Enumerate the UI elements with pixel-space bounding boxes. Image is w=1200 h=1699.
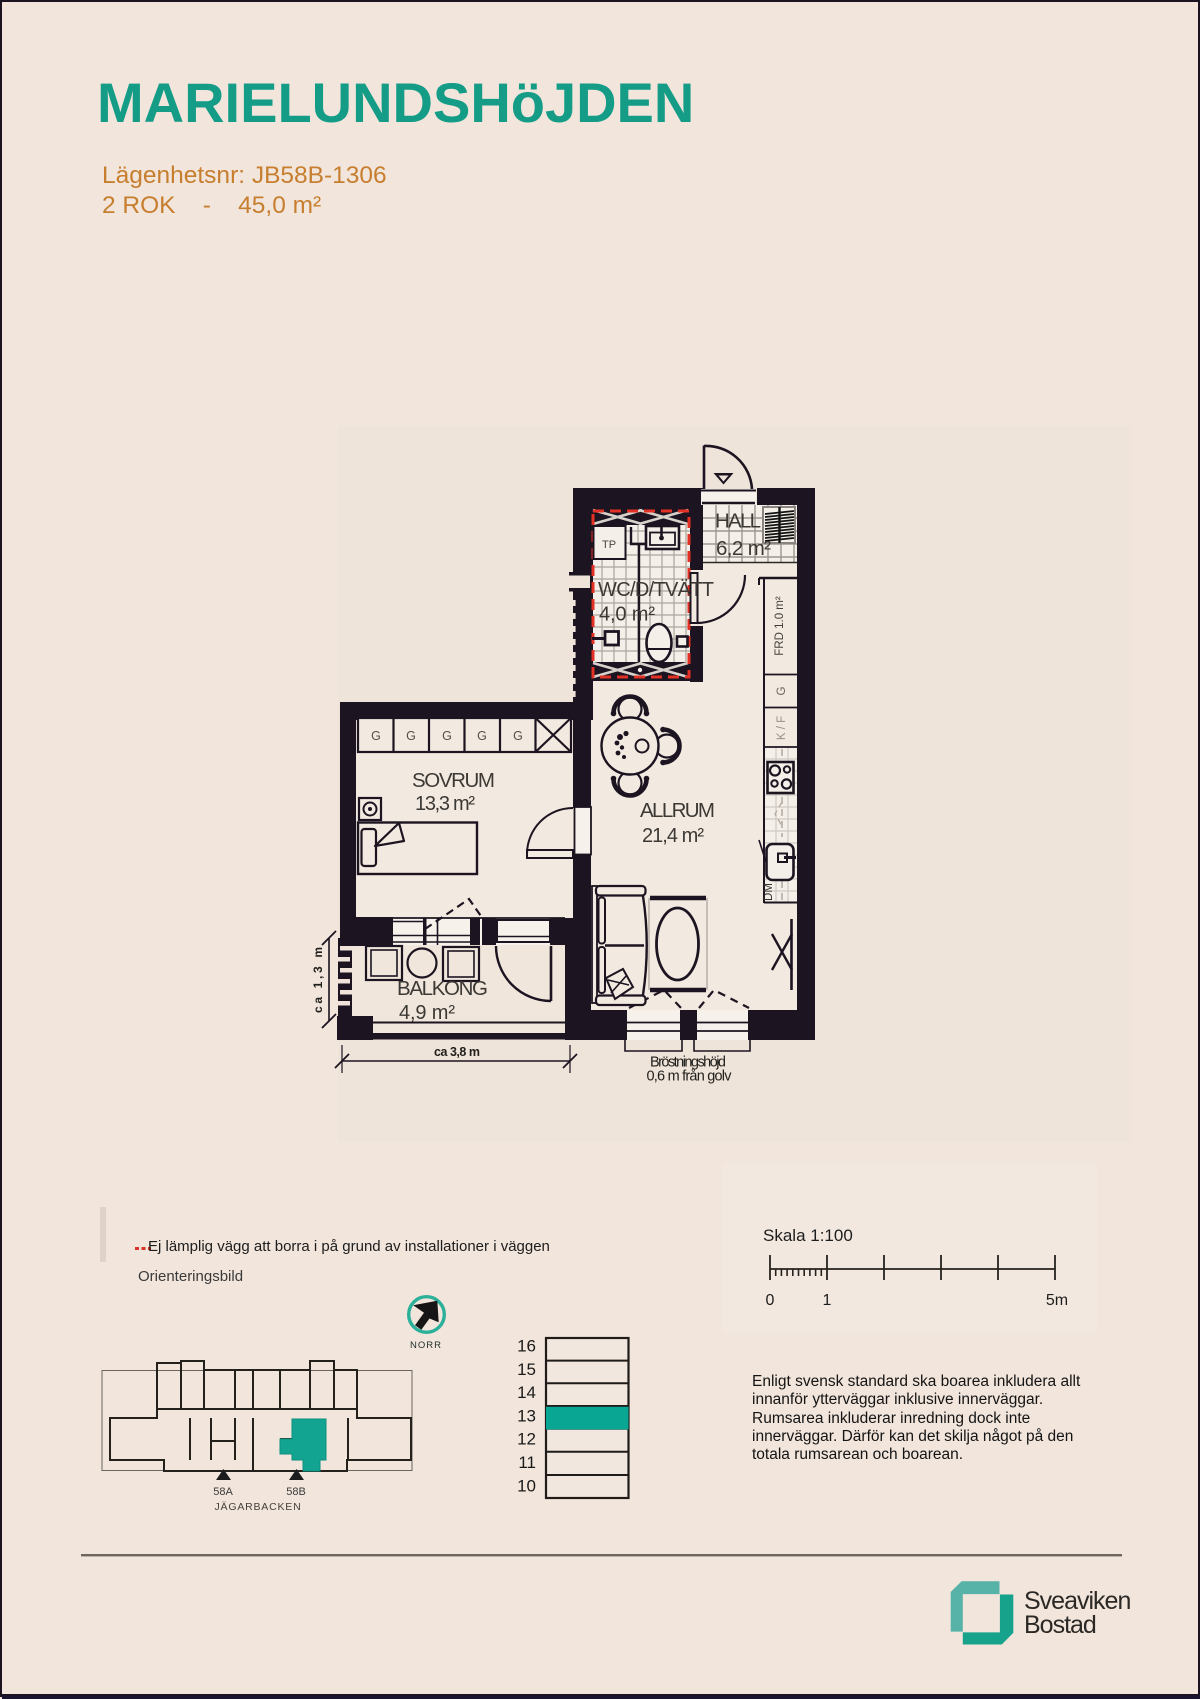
svg-text:1: 1 xyxy=(823,1292,832,1309)
svg-text:JÄGARBACKEN: JÄGARBACKEN xyxy=(215,1501,302,1513)
svg-text:G: G xyxy=(477,729,487,743)
svg-text:WC/D/TVÄTT: WC/D/TVÄTT xyxy=(598,579,714,601)
svg-text:G: G xyxy=(776,686,788,695)
svg-text:ALLRUM: ALLRUM xyxy=(640,799,715,822)
svg-text:G: G xyxy=(442,729,452,743)
svg-text:G: G xyxy=(406,729,416,743)
svg-text:6,2 m²: 6,2 m² xyxy=(716,537,771,560)
svg-text:13,3 m²: 13,3 m² xyxy=(415,793,475,815)
svg-text:10: 10 xyxy=(517,1476,536,1495)
svg-text:12: 12 xyxy=(517,1430,536,1449)
svg-text:TP: TP xyxy=(602,539,616,551)
svg-text:58A: 58A xyxy=(213,1486,233,1498)
svg-text:G: G xyxy=(513,729,523,743)
svg-text:16: 16 xyxy=(517,1337,536,1356)
svg-text:HALL: HALL xyxy=(715,510,761,533)
svg-text:FRD 1.0 m²: FRD 1.0 m² xyxy=(774,596,786,656)
svg-text:ca 1,3 m: ca 1,3 m xyxy=(311,947,325,1013)
svg-text:21,4 m²: 21,4 m² xyxy=(642,825,704,847)
svg-text:4,0 m²: 4,0 m² xyxy=(599,604,655,626)
svg-text:BALKONG: BALKONG xyxy=(397,977,488,1000)
svg-text:14: 14 xyxy=(517,1383,536,1402)
svg-text:G: G xyxy=(371,729,381,743)
svg-text:5m: 5m xyxy=(1046,1292,1068,1309)
svg-text:SOVRUM: SOVRUM xyxy=(412,769,495,792)
svg-text:15: 15 xyxy=(517,1360,536,1379)
svg-text:DM: DM xyxy=(763,883,775,901)
svg-text:0: 0 xyxy=(766,1292,775,1309)
svg-text:11: 11 xyxy=(518,1453,536,1472)
svg-text:4,9 m²: 4,9 m² xyxy=(399,1002,455,1024)
svg-text:ca 3,8 m: ca 3,8 m xyxy=(434,1045,480,1059)
svg-text:13: 13 xyxy=(517,1406,536,1425)
svg-text:K / F: K / F xyxy=(776,716,788,740)
svg-text:NORR: NORR xyxy=(410,1340,442,1351)
svg-text:58B: 58B xyxy=(286,1486,306,1498)
svg-text:0,6 m från golv: 0,6 m från golv xyxy=(647,1069,733,1085)
